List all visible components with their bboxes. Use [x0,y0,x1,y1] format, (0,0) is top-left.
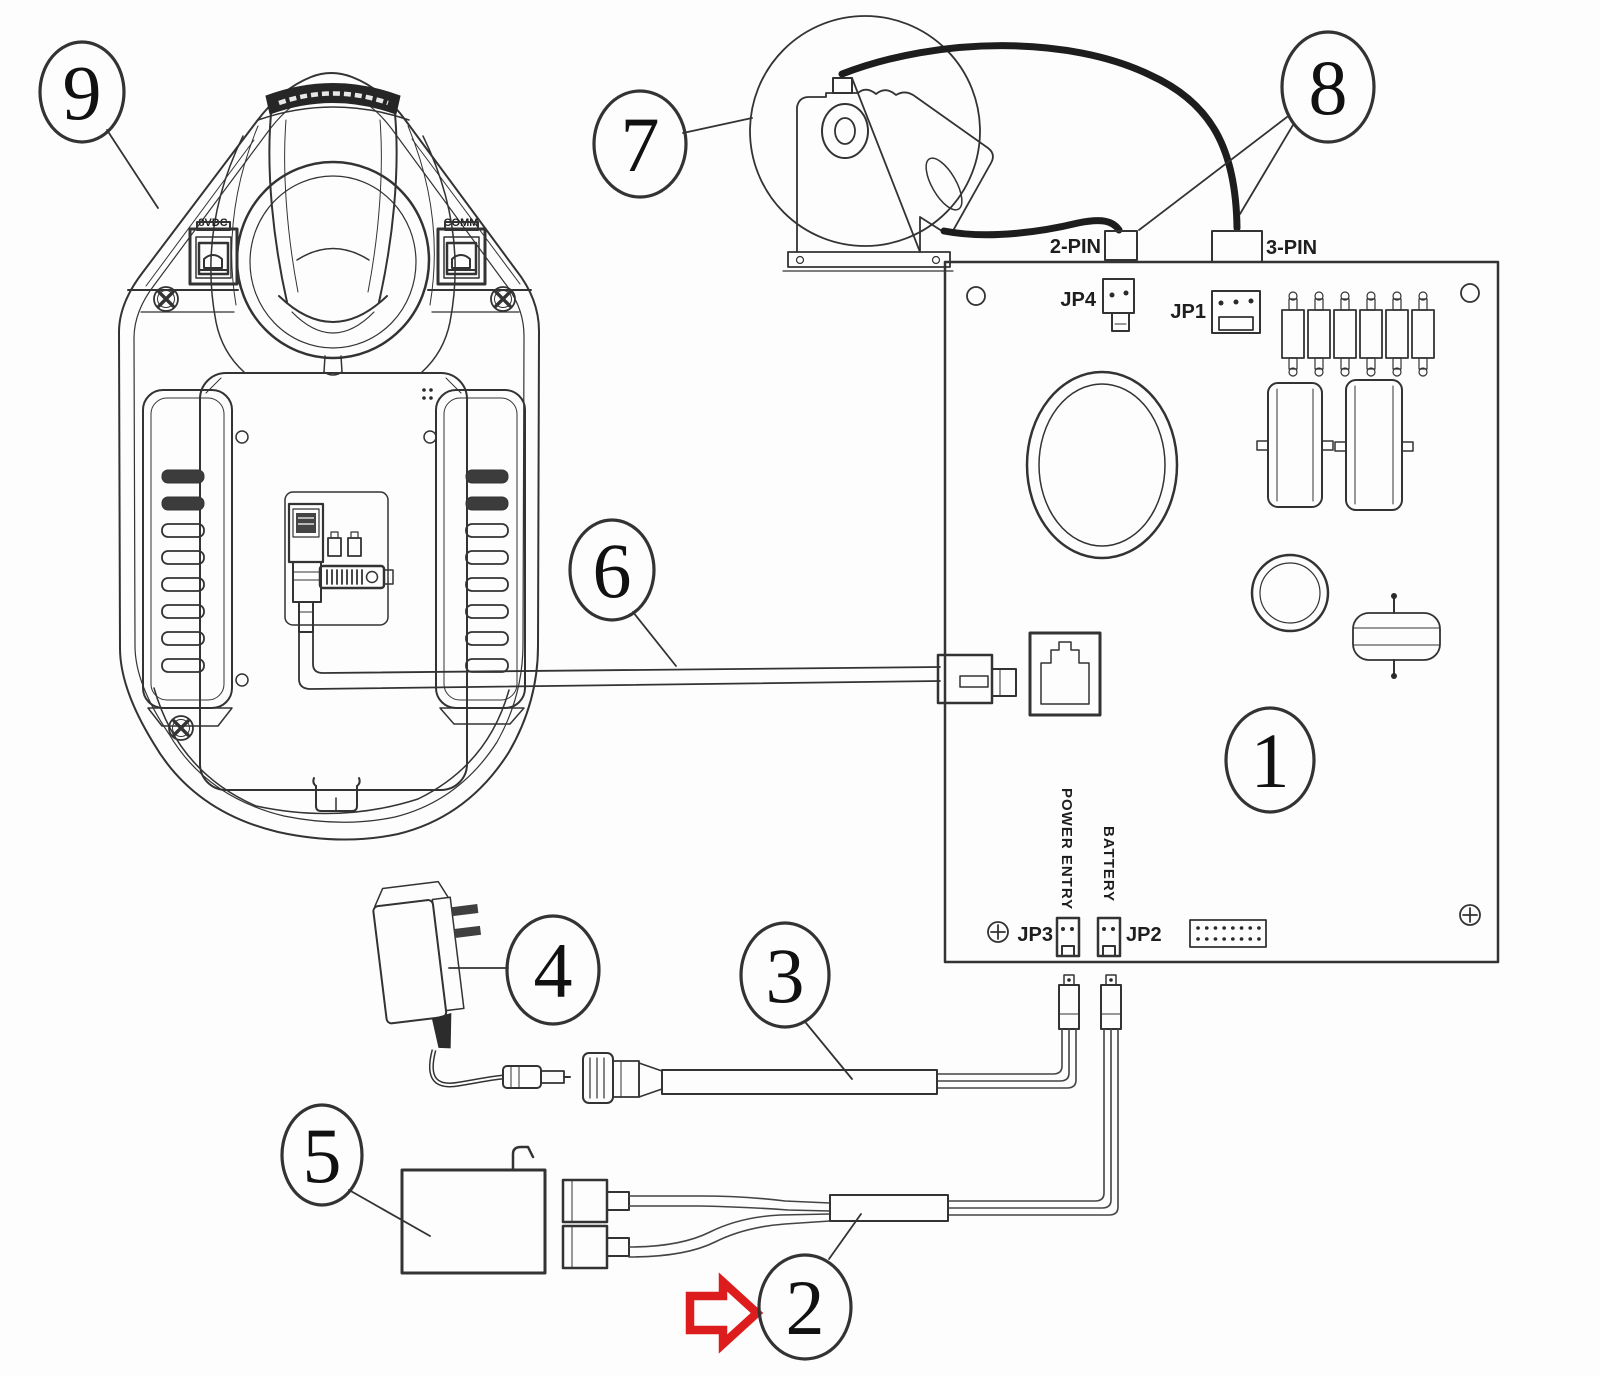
speaker [1027,372,1177,558]
vent-rail-right [436,390,525,724]
power-entry-cable [583,1053,937,1103]
jp4-label: JP4 [1060,289,1096,311]
diagram-page: 8VDC COMM [0,0,1600,1376]
crystal [1353,593,1440,679]
port-comm: COMM [438,217,485,284]
harness-connectors [937,975,1121,1215]
two-pin-connector [1105,231,1137,260]
bottom-clip [313,778,359,811]
callout-3: 3 [741,923,852,1079]
holster-recess [211,114,455,375]
callout-2: 2 [759,1214,861,1359]
power-entry-label: POWER ENTRY [1058,788,1075,910]
logo-band [258,84,409,121]
callout-6: 6 [570,520,676,666]
connector-plate [285,492,393,632]
motor-cables: 2-PIN 3-PIN [842,46,1317,262]
red-arrow-icon [690,1282,757,1344]
plug-prong [451,904,478,916]
jp3-connector: JP3 [1017,918,1079,956]
three-pin-label: 3-PIN [1266,237,1317,259]
round-component [1252,555,1328,631]
callout-7: 7 [594,91,752,197]
callout-9-number: 9 [63,49,102,136]
battery-label: BATTERY [1100,826,1117,902]
three-pin-connector [1212,231,1262,262]
callout-9: 9 [40,42,158,208]
pin-header [1190,920,1266,947]
controller-board: JP4 JP1 [945,262,1498,962]
film-capacitors [1257,380,1413,510]
port-8vdc: 8VDC [190,217,237,284]
vent-rail-left [143,390,232,726]
callout-7-number: 7 [621,101,660,188]
jp3-label: JP3 [1017,924,1053,946]
rj-plug [938,655,1016,703]
callout-8-number: 8 [1309,44,1348,131]
battery-pack [402,1147,545,1273]
back-panel [200,373,467,790]
jp2-connector: JP2 [1098,918,1162,956]
jp4-connector: JP4 [1060,279,1134,331]
cradle-unit: 8VDC COMM [119,73,539,840]
callout-1-number: 1 [1251,717,1290,804]
capacitor-bank [1282,292,1434,376]
callout-1: 1 [1226,708,1314,812]
two-pin-label: 2-PIN [1050,236,1101,258]
callout-8: 8 [1139,32,1374,230]
rj-jack [1030,633,1100,715]
callout-2-number: 2 [786,1264,825,1351]
plug-prong [454,926,481,938]
jp2-label: JP2 [1126,924,1162,946]
motor-cable-2pin [944,221,1119,235]
battery-harness [563,1180,948,1268]
screw-icon [988,905,1480,942]
callout-3-number: 3 [766,932,805,1019]
jp1-label: JP1 [1170,301,1206,323]
barrel-plug [503,1066,570,1088]
callout-5-number: 5 [303,1112,342,1199]
wiring-diagram: 8VDC COMM [0,0,1600,1376]
jp1-connector: JP1 [1170,291,1260,333]
callout-4-number: 4 [534,927,573,1014]
callout-6-number: 6 [593,527,632,614]
